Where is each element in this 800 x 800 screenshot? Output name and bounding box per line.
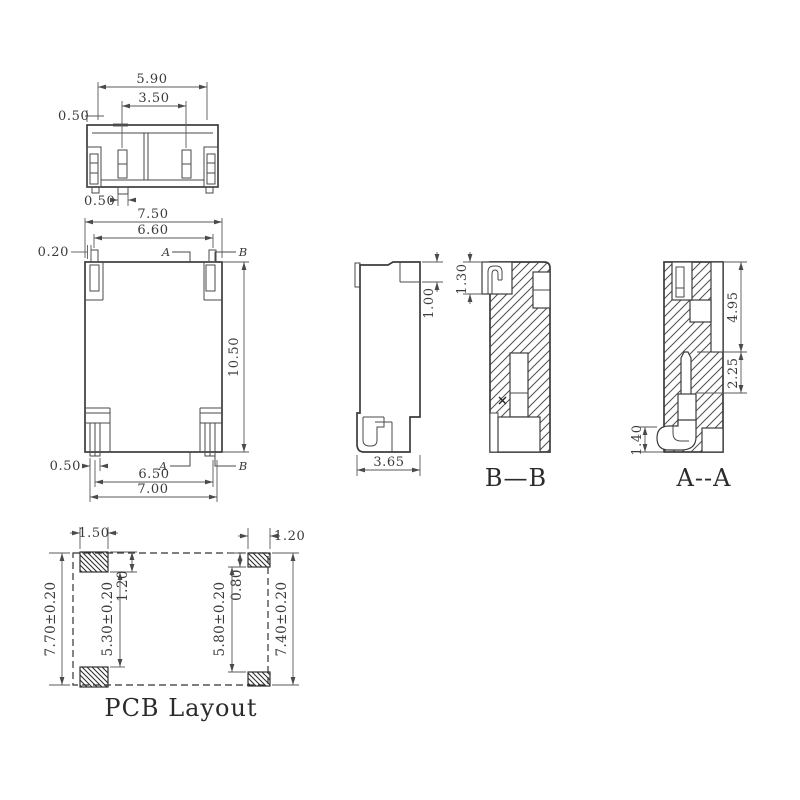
dim-pcb-outer-height-left: 7.70±0.20 [43, 581, 59, 656]
dim-pcb-pad-width-right: 1.20 [274, 529, 305, 544]
section-letter-a-top: A [161, 245, 170, 259]
dim-top-inner-width: 3.50 [138, 91, 169, 106]
dim-side-depth: 3.65 [373, 455, 404, 470]
dim-aa-pin-depth: 2.25 [726, 357, 741, 388]
dim-top-side-offset: 0.50 [58, 109, 89, 124]
section-bb-channel [510, 353, 528, 417]
dim-side-step-height: 1.00 [422, 287, 437, 318]
section-bb-latch [482, 262, 512, 294]
dim-pcb-pad-height-left: 1.20 [115, 570, 131, 602]
weld-mark [113, 124, 128, 127]
side-view-outline [357, 262, 420, 452]
top-view-body [87, 125, 218, 187]
section-bb-label: B—B [485, 464, 547, 492]
side-view: 1.00 3.65 [355, 252, 443, 476]
top-view-right-latch [204, 147, 218, 187]
front-view: A B A B 7.50 6.60 0.20 10.50 0.50 [38, 207, 249, 502]
top-view-center-tab [118, 187, 128, 194]
dim-front-pin-width: 0.50 [50, 459, 81, 474]
top-view-left-latch [87, 147, 101, 187]
dim-front-pin-span: 6.50 [138, 467, 169, 482]
dim-aa-foot-height: 1.40 [630, 424, 645, 455]
section-bb-bottom-cavity [498, 417, 540, 452]
pcb-pad-top-right [248, 553, 270, 567]
pcb-layout: 1.50 1.20 7.70±0.20 5.30±0.20 1.20 0.80 … [43, 526, 305, 722]
pcb-pad-bottom-right [248, 672, 270, 686]
dim-pcb-outer-height-right: 7.40±0.20 [274, 581, 290, 656]
section-letter-b-top: B [238, 245, 247, 259]
top-view: 5.90 3.50 0.50 0.50 [58, 72, 218, 209]
section-bb: 1.30 B—B [455, 252, 550, 492]
connector-engineering-drawing: 5.90 3.50 0.50 0.50 [0, 0, 800, 800]
dim-top-width: 5.90 [136, 72, 167, 87]
dim-bb-latch-height: 1.30 [455, 263, 470, 294]
dim-aa-upper-depth: 4.95 [726, 291, 741, 322]
dim-front-inner-width: 6.60 [137, 223, 168, 238]
dim-front-pin-offset: 0.20 [38, 245, 69, 260]
drawing-svg: 5.90 3.50 0.50 0.50 [0, 0, 800, 800]
dim-front-outer-width: 7.50 [137, 207, 168, 222]
dim-pcb-pad-width-left: 1.50 [78, 526, 109, 541]
dim-front-foot-span: 7.00 [137, 482, 168, 497]
section-aa: 4.95 2.25 1.40 A--A [630, 262, 747, 492]
section-aa-label: A--A [676, 464, 732, 492]
front-left-pin-top [91, 250, 98, 262]
pcb-pad-bottom-left [80, 667, 108, 687]
section-letter-b-bottom: B [238, 459, 247, 473]
pcb-pad-top-left [80, 552, 108, 572]
dim-pcb-inner-height-right: 5.80±0.20 [212, 581, 228, 656]
dim-front-height: 10.50 [227, 337, 242, 377]
dim-top-tab-width: 0.50 [84, 194, 115, 209]
pcb-layout-title: PCB Layout [104, 694, 257, 722]
dim-pcb-inner-height-left: 5.30±0.20 [100, 581, 116, 656]
section-aa-contact-pin [681, 352, 691, 395]
dim-pcb-pad-height-right: 0.80 [229, 569, 245, 601]
